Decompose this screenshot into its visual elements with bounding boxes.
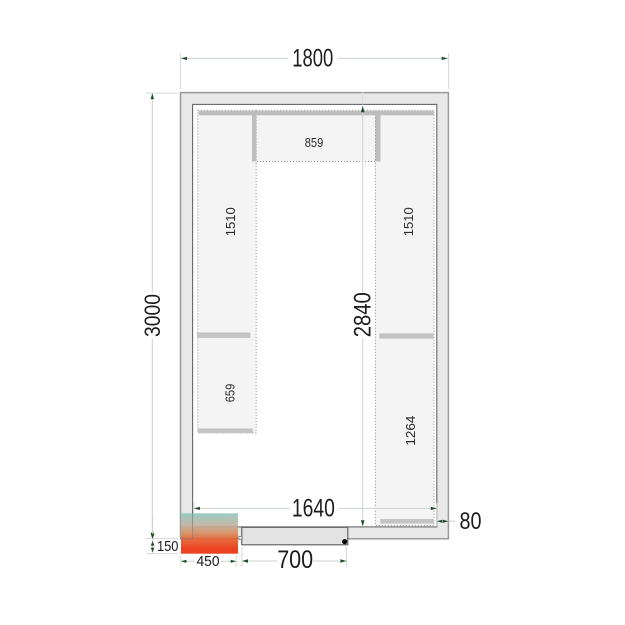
svg-text:2840: 2840 xyxy=(350,292,377,337)
svg-text:80: 80 xyxy=(460,508,482,535)
svg-text:659: 659 xyxy=(222,384,237,403)
svg-text:1510: 1510 xyxy=(224,207,238,236)
svg-text:150: 150 xyxy=(157,538,179,555)
svg-text:1510: 1510 xyxy=(402,207,416,236)
svg-text:3000: 3000 xyxy=(140,294,165,337)
svg-text:1640: 1640 xyxy=(292,494,335,522)
svg-text:450: 450 xyxy=(197,553,220,570)
svg-text:1800: 1800 xyxy=(292,45,333,73)
svg-text:859: 859 xyxy=(305,135,324,150)
svg-text:700: 700 xyxy=(277,546,313,574)
svg-text:1264: 1264 xyxy=(404,416,418,446)
